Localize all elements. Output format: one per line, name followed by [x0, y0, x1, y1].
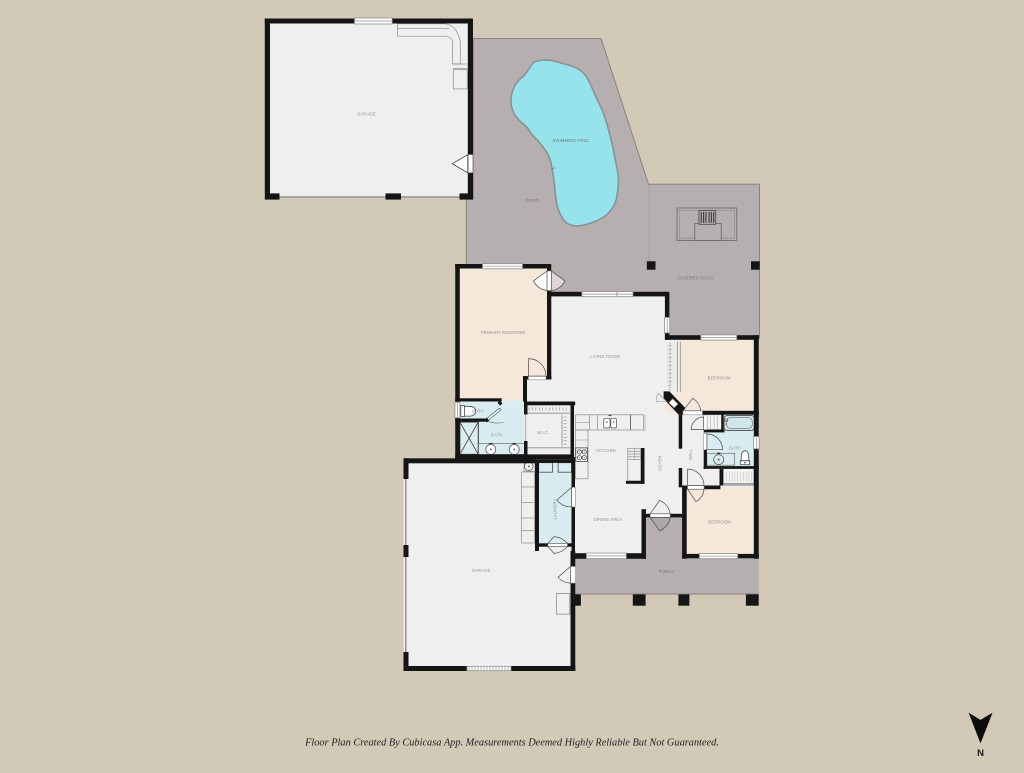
svg-text:BEDROOM: BEDROOM [708, 376, 731, 381]
svg-text:BATH: BATH [472, 409, 483, 414]
svg-text:BATH: BATH [729, 445, 740, 450]
svg-text:BATH: BATH [491, 433, 502, 438]
svg-text:HALL: HALL [688, 448, 693, 460]
svg-text:PORCH: PORCH [659, 569, 675, 574]
svg-text:PATIO: PATIO [526, 198, 539, 203]
svg-text:PRIMARY BEDROOM: PRIMARY BEDROOM [481, 330, 525, 335]
svg-text:DINING AREA: DINING AREA [594, 517, 623, 522]
svg-text:LAUNDRY: LAUNDRY [552, 498, 557, 519]
svg-text:COVERED PATIO: COVERED PATIO [677, 276, 713, 281]
svg-text:LIVING ROOM: LIVING ROOM [590, 354, 620, 359]
svg-text:BEDROOM: BEDROOM [708, 519, 731, 524]
svg-text:FOYER: FOYER [657, 455, 662, 470]
svg-text:KITCHEN: KITCHEN [596, 448, 615, 453]
svg-text:Floor Plan Created By Cubicasa: Floor Plan Created By Cubicasa App. Meas… [304, 738, 719, 749]
svg-text:W.I.C.: W.I.C. [537, 430, 549, 435]
svg-text:GARAGE: GARAGE [357, 112, 376, 117]
svg-text:SWIMMING POOL: SWIMMING POOL [552, 138, 590, 143]
svg-text:N: N [977, 748, 984, 759]
svg-text:GARAGE: GARAGE [472, 568, 491, 573]
